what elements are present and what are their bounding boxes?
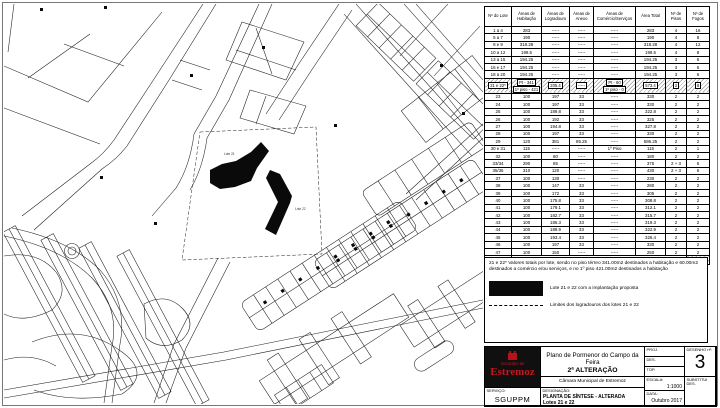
table-cell: 35/36 [485,167,512,174]
table-cell: ----- [570,71,594,78]
table-cell: 8 e 9 [485,41,512,48]
table-cell: ----- [570,49,594,56]
legend-label: Limites dos logradouros dos lotes 21 e 2… [550,303,639,308]
table-row: 35/36310120----------4302 + 36 [485,167,710,174]
table-cell: 4 [666,49,687,56]
table-cell: ----- [570,152,594,159]
table-cell: 290 [512,160,542,167]
table-cell: ----- [570,175,594,182]
table-cell: 2 [666,241,687,248]
table-cell: ----- [594,175,636,182]
table-cell: 3 [666,71,687,78]
table-cell: 280 [636,182,666,189]
notes-legend-box: 21 e 22* Valores totais por lote, sendo … [484,257,708,343]
table-cell: 10 a 12 [485,49,512,56]
municipality-name: Estremoz [485,366,540,378]
table-cell: 194.8 [542,123,570,130]
table-cell: 100 [512,130,542,137]
table-cell: 199.5 [636,49,666,56]
table-cell: 33 [570,234,594,241]
municipality-logo: município de Estremoz [485,347,541,388]
table-cell: ----- [594,93,636,100]
table-cell: 2 [666,123,687,130]
table-cell: 325 [636,115,666,122]
proj-cell: PROJ. [645,347,685,357]
table-cell: ----- [594,123,636,130]
table-cell: 330 [636,93,666,100]
table-cell: ----- [570,249,594,256]
table-cell: 2 [687,212,710,219]
black-lot-swatch [489,281,543,296]
table-row: 37100130----------23022 [485,175,710,182]
table-row: 2610019233-----32522 [485,115,710,122]
table-cell: 327.8 [636,123,666,130]
table-cell: 310 [512,167,542,174]
table-cell: 120 [512,138,542,145]
table-cell: 2 [666,138,687,145]
des-label: DES. [645,357,684,362]
lot-table: Nº do LoteÁreas de HabitaçãoÁreas de Log… [484,6,710,265]
estremoz-shield-icon [508,350,517,360]
table-cell: 2 [666,182,687,189]
table-cell: 197 [542,101,570,108]
table-cell: 33 [570,93,594,100]
table-cell: ----- [542,34,570,41]
column-header: Nº de Pisos [666,7,687,27]
table-cell: 100 [512,197,542,204]
table-cell: 8 [687,78,710,93]
table-cell: 41 [485,204,512,211]
designacao-label: DESIGNAÇÃO: [541,388,644,393]
table-cell: 205.4 [542,78,570,93]
table-cell: 2 [687,101,710,108]
table-cell: ----- [594,130,636,137]
table-row: 2310019733-----33022 [485,93,710,100]
table-row: 41100179.133-----312.122 [485,204,710,211]
table-cell: 2 [687,219,710,226]
table-cell: 230 [636,175,666,182]
table-cell: 322.9 [636,226,666,233]
table-cell: 2 [666,189,687,196]
table-cell: ----- [594,182,636,189]
table-cell: 2 [666,219,687,226]
table-cell: 2 [687,152,710,159]
table-cell: 6 [687,63,710,70]
table-cell: 190 [512,34,542,41]
table-cell: ----- [594,56,636,63]
lot-data-panel: Nº do LoteÁreas de HabitaçãoÁreas de Log… [484,6,709,265]
proj-label: PROJ. [645,347,684,352]
table-cell: 2 [666,101,687,108]
table-cell: ----- [542,71,570,78]
table-row: 40100175.833-----308.822 [485,197,710,204]
table-row: 3810014733-----28022 [485,182,710,189]
table-row: 3910017233-----30522 [485,189,710,196]
table-cell: 179.1 [542,204,570,211]
legend-item-limits: Limites dos logradouros dos lotes 21 e 2… [489,303,703,308]
table-row: 25100189.833-----322.822 [485,108,710,115]
table-cell: 21 e 22* [485,78,512,93]
table-cell: 2 [687,234,710,241]
escala-cell: ESCALA: 1:1000 [645,377,685,391]
substitui-label: SUBSTITUI DES. [685,377,715,386]
table-cell: 115 [512,145,542,152]
table-cell: 33/34 [485,160,512,167]
table-cell: ----- [594,204,636,211]
table-cell: 13 a 15 [485,56,512,63]
table-cell: 2 [687,241,710,248]
table-cell: 4 [666,27,687,34]
table-cell: 100 [512,182,542,189]
footnote-text: 21 e 22* Valores totais por lote, sendo … [489,261,703,274]
table-cell: 12 [687,41,710,48]
table-cell: ----- [570,160,594,167]
table-cell: 100 [512,234,542,241]
table-cell: 115 [636,145,666,152]
table-cell: 175.8 [542,197,570,204]
table-cell: 2 [687,189,710,196]
table-row: 2410019733-----33022 [485,101,710,108]
table-cell: 45 [485,234,512,241]
table-cell: 120 [542,167,570,174]
table-cell: 2 [666,175,687,182]
top-cell: TOP. [645,367,685,377]
table-cell: 27 [485,123,512,130]
table-cell: ----- [542,41,570,48]
table-cell: 199.5 [512,49,542,56]
table-cell: 430 [636,167,666,174]
designacao-value-line1: PLANTA DE SÍNTESE - ALTERADA [543,394,625,400]
table-cell: 100 [512,219,542,226]
table-cell: 2 [666,152,687,159]
plan-title-cell: Plano de Pormenor do Campo da Feira 2ª A… [541,347,645,377]
table-cell: ----- [594,152,636,159]
table-cell: ----- [570,41,594,48]
table-cell: ----- [542,145,570,152]
table-cell: 18 a 20 [485,71,512,78]
table-cell: 250 [636,249,666,256]
lot22-label: Lote 22 [295,207,306,211]
table-row: 47100150----------25022 [485,249,710,256]
table-cell: 192 [542,115,570,122]
table-cell: 33 [570,226,594,233]
table-cell: ----- [570,63,594,70]
legend-item-lot: Lote 21 e 22 com a implantação proposta [489,281,703,296]
table-cell: ----- [570,167,594,174]
table-cell: ----- [594,41,636,48]
table-row: 3210080----------18022 [485,152,710,159]
table-cell: ----- [594,138,636,145]
table-cell: 6 [687,71,710,78]
table-cell: 1º Piso [594,145,636,152]
column-header: Nº do Lote [485,7,512,27]
plan-subtitle: 2ª ALTERAÇÃO [541,367,644,374]
table-cell: 2 + 3 [666,160,687,167]
table-cell: 319.3 [636,219,666,226]
table-cell: 3 [666,56,687,63]
column-header: Áreas de Anexo [570,7,594,27]
column-header: Nº de Fogos [687,7,710,27]
camara-text: Câmara Municipal de Estremoz [541,379,644,384]
table-cell: ----- [570,78,594,93]
table-cell: 194.25 [512,71,542,78]
table-cell: 190 [636,34,666,41]
table-cell: 40 [485,197,512,204]
table-cell: 23 [485,93,512,100]
table-cell: 33 [570,108,594,115]
table-cell: 283 [636,27,666,34]
table-cell: 2 [666,108,687,115]
city-plan-map: Lote 21 Lote 22 [4,4,483,404]
table-cell: 6 [687,56,710,63]
table-cell: 100 [512,241,542,248]
table-cell: ----- [594,160,636,167]
table-cell: 4 [666,34,687,41]
table-cell: 150 [542,249,570,256]
table-cell: 6 [687,167,710,174]
table-row: 18 a 20194.25---------------194.2536 [485,71,710,78]
table-cell: ----- [570,56,594,63]
table-cell: 80 [542,152,570,159]
table-cell: 32 [485,152,512,159]
table-cell: 2 [666,115,687,122]
camara-cell: Câmara Municipal de Estremoz [541,377,645,388]
drawing-number: 3 [685,353,715,372]
table-cell: 33 [570,212,594,219]
table-cell: ----- [594,189,636,196]
table-cell: ----- [594,71,636,78]
table-cell: 43 [485,219,512,226]
table-cell: 197 [542,130,570,137]
table-cell: 8 [687,34,710,41]
table-cell: 39 [485,189,512,196]
table-cell: 2 [666,204,687,211]
table-cell: Pt - 601º piso - 0 [594,78,636,93]
top-label: TOP. [645,367,684,372]
table-row: 1 a 4283---------------283416 [485,27,710,34]
table-cell: ----- [594,241,636,248]
table-cell: 26 [485,115,512,122]
table-cell: 33 [570,182,594,189]
table-cell: 100 [512,189,542,196]
table-row: 16 e 17194.25---------------194.2536 [485,63,710,70]
table-cell: 2 [666,234,687,241]
table-cell: 322.8 [636,108,666,115]
table-cell: 193.4 [542,234,570,241]
table-row: 30 e 31115----------1º Piso11521 [485,145,710,152]
table-cell: 100 [512,108,542,115]
table-cell: 4 [666,41,687,48]
table-cell: 2 [687,182,710,189]
table-cell: 186.3 [542,219,570,226]
table-cell: 100 [512,101,542,108]
table-cell: 130 [542,175,570,182]
table-cell: Pt - 3411º piso - 421 [512,78,542,93]
table-cell: 573.4 [636,78,666,93]
table-cell: 283 [512,27,542,34]
table-cell: 2 [687,175,710,182]
table-cell: 1 [687,145,710,152]
table-cell: 197 [542,93,570,100]
table-cell: 2 [687,93,710,100]
desenho-cell: DESENHO nº: 3 [685,347,716,377]
table-cell: 100 [512,175,542,182]
table-cell: 375 [636,160,666,167]
table-cell: 194.25 [636,71,666,78]
table-cell: 46 [485,241,512,248]
substitui-cell: SUBSTITUI DES. [685,377,716,406]
table-cell: 100 [512,226,542,233]
table-cell: 2 [666,145,687,152]
dashed-line-swatch [489,305,543,306]
table-cell: 2 [666,249,687,256]
table-cell: 30 e 31 [485,145,512,152]
table-cell: ----- [594,49,636,56]
table-cell: ----- [594,108,636,115]
table-cell: 194.25 [636,63,666,70]
table-cell: 33 [570,130,594,137]
table-cell: 2 [687,130,710,137]
table-cell: 381 [542,138,570,145]
table-cell: 318.28 [512,41,542,48]
legend-label: Lote 21 e 22 com a implantação proposta [550,286,638,291]
escala-value: 1:1000 [645,384,684,390]
column-header: Área Total [636,7,666,27]
column-header: Áreas de Habitação [512,7,542,27]
table-cell: ----- [570,27,594,34]
table-cell: 33 [570,123,594,130]
table-cell: 2 [666,212,687,219]
table-cell: 100 [512,123,542,130]
table-cell: 33 [570,204,594,211]
table-row: 8 e 9318.28---------------318.28412 [485,41,710,48]
data-label: DATA: [645,391,684,396]
table-cell: 100 [512,93,542,100]
table-cell: ----- [594,27,636,34]
table-cell: 100 [512,212,542,219]
table-cell: 182.7 [542,212,570,219]
table-cell: 2 [687,115,710,122]
data-cell: DATA: Outubro 2017 [645,391,685,406]
table-cell: 189.8 [542,108,570,115]
table-cell: 180 [636,152,666,159]
column-header: Áreas de Comércio/Serviços [594,7,636,27]
table-cell: 85.25 [570,138,594,145]
table-cell: 330 [636,101,666,108]
table-cell: 2 [687,123,710,130]
escala-label: ESCALA: [645,377,684,382]
table-row: 2810019733-----33022 [485,130,710,137]
table-cell: ----- [542,56,570,63]
table-cell: 2 + 3 [666,167,687,174]
table-cell: 38 [485,182,512,189]
table-cell: 318.28 [636,41,666,48]
table-cell: 2 [666,130,687,137]
designacao-value-line2: Lotes 21 e 22 [543,400,574,406]
table-cell: 24 [485,101,512,108]
servico-value: SGUPPM [485,395,540,404]
table-cell: ----- [594,249,636,256]
table-cell: 8 [687,49,710,56]
table-cell: 147 [542,182,570,189]
column-header: Áreas de Logradouro [542,7,570,27]
table-cell: 2 [666,226,687,233]
des-cell: DES. [645,357,685,367]
title-block: município de Estremoz SERVIÇO: SGUPPM Pl… [484,346,717,407]
table-cell: 100 [512,115,542,122]
table-cell: 2 [687,226,710,233]
table-cell: 16 e 17 [485,63,512,70]
table-cell: 2 [666,197,687,204]
table-row: 27100194.833-----327.822 [485,123,710,130]
table-cell: 2 [666,93,687,100]
servico-cell: SERVIÇO: SGUPPM [485,388,541,406]
table-cell: 586.25 [636,138,666,145]
table-cell: 194.25 [512,63,542,70]
lot21-label: Lote 21 [224,152,235,156]
table-cell: ----- [594,212,636,219]
table-cell: 312.1 [636,204,666,211]
table-cell: 6 [687,160,710,167]
data-value: Outubro 2017 [645,398,684,404]
table-cell: ----- [570,145,594,152]
designacao-cell: DESIGNAÇÃO: PLANTA DE SÍNTESE - ALTERADA… [541,388,645,406]
table-cell: 33 [570,241,594,248]
table-row: 33/3429085----------3752 + 36 [485,160,710,167]
table-cell: 85 [542,160,570,167]
table-row: 44100189.933-----322.922 [485,226,710,233]
table-row: 45100193.433-----326.422 [485,234,710,241]
table-row: 10 a 12199.5---------------199.548 [485,49,710,56]
table-cell: 330 [636,130,666,137]
table-cell: ----- [594,197,636,204]
table-cell: 33 [570,197,594,204]
table-cell: ----- [594,115,636,122]
table-cell: 29 [485,138,512,145]
table-cell: ----- [542,27,570,34]
table-cell: 2 [687,204,710,211]
table-cell: 25 [485,108,512,115]
table-cell: 194.25 [512,56,542,63]
table-cell: 308.8 [636,197,666,204]
table-row: 42100182.733-----315.722 [485,212,710,219]
table-cell: ----- [594,226,636,233]
table-cell: 197 [542,241,570,248]
table-cell: 33 [570,189,594,196]
table-cell: 37 [485,175,512,182]
table-cell: 47 [485,249,512,256]
table-cell: 33 [570,219,594,226]
table-cell: ----- [594,34,636,41]
lot-table-body: 1 a 4283---------------2834165 a 7190---… [485,27,710,265]
servico-label: SERVIÇO: [485,388,540,393]
table-cell: 3 [666,63,687,70]
table-cell: 189.9 [542,226,570,233]
table-cell: 2 [687,138,710,145]
table-row: 21 e 22*Pt - 3411º piso - 421205.4-----P… [485,78,710,93]
table-cell: 326.4 [636,234,666,241]
table-cell: 2 [687,108,710,115]
table-cell: ----- [542,63,570,70]
table-row: 5 a 7190---------------19048 [485,34,710,41]
table-cell: ----- [594,219,636,226]
table-cell: ----- [542,49,570,56]
table-cell: 100 [512,152,542,159]
table-cell: 42 [485,212,512,219]
table-row: 2912038185.25-----586.2522 [485,138,710,145]
table-cell: 315.7 [636,212,666,219]
table-cell: ----- [594,167,636,174]
